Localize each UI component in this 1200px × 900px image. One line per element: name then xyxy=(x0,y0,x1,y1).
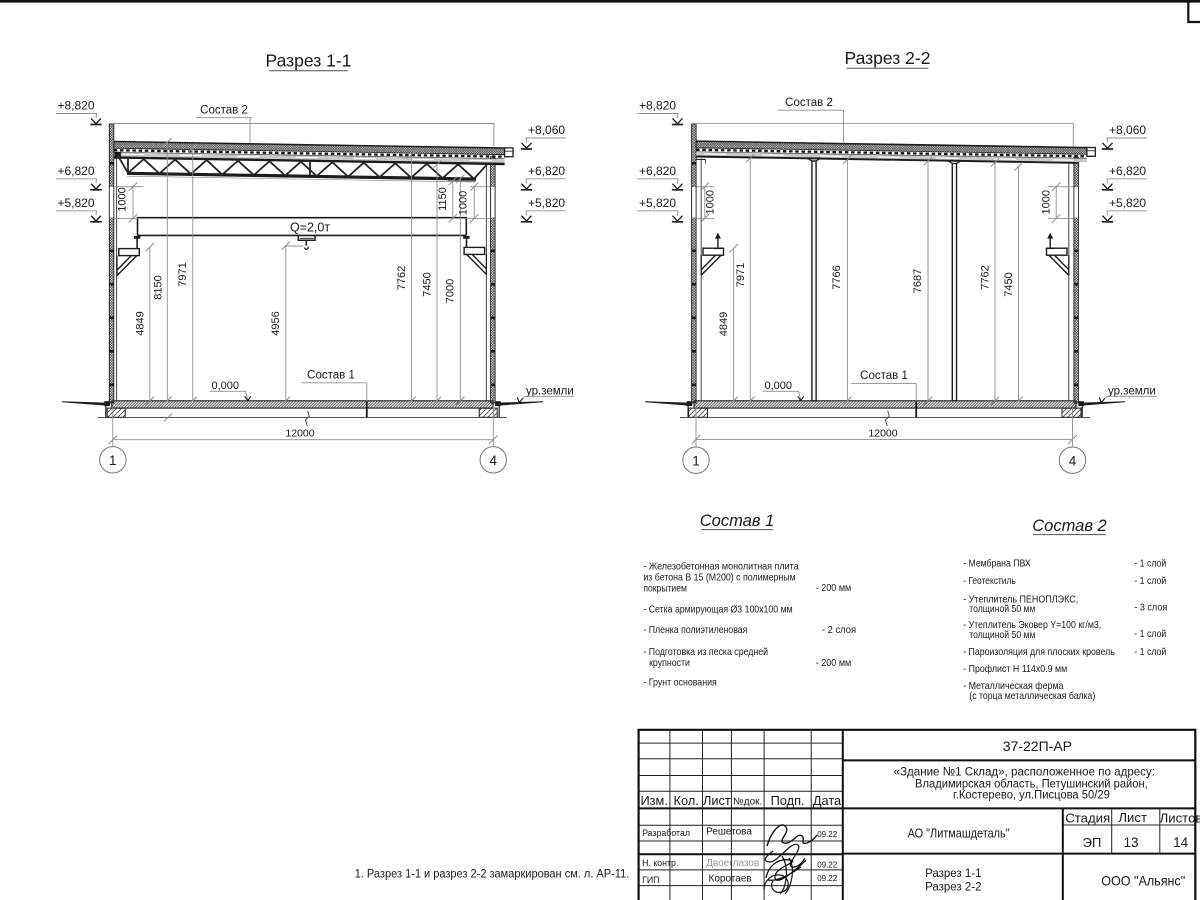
svg-text:7762: 7762 xyxy=(980,265,992,289)
svg-text:- 3 слоя: - 3 слоя xyxy=(1134,602,1167,614)
svg-text:1: 1 xyxy=(109,453,117,468)
svg-text:+8,820: +8,820 xyxy=(639,99,676,113)
svg-text:1000: 1000 xyxy=(458,191,470,215)
svg-text:4849: 4849 xyxy=(718,312,730,336)
svg-text:09.22: 09.22 xyxy=(817,874,838,883)
svg-text:4849: 4849 xyxy=(135,311,147,335)
svg-text:8150: 8150 xyxy=(152,275,164,299)
svg-text:ур.земли: ур.земли xyxy=(1108,385,1156,397)
svg-text:7971: 7971 xyxy=(177,262,189,286)
svg-text:(с торца металлическая балка): (с торца металлическая балка) xyxy=(969,690,1095,702)
svg-text:- 1 слой: - 1 слой xyxy=(1134,646,1166,658)
svg-text:Изм.: Изм. xyxy=(640,793,667,808)
svg-text:- Пленка полиэтиленовая: - Пленка полиэтиленовая xyxy=(643,624,747,636)
svg-text:+6,820: +6,820 xyxy=(528,164,565,178)
svg-text:ур.земли: ур.земли xyxy=(526,385,574,397)
svg-text:№док.: №док. xyxy=(733,797,762,808)
svg-text:13: 13 xyxy=(1123,835,1138,850)
svg-text:ГИП: ГИП xyxy=(642,875,659,885)
svg-text:+8,060: +8,060 xyxy=(1109,123,1146,137)
svg-text:- 1 слой: - 1 слой xyxy=(1134,575,1166,587)
svg-text:- 1 слой: - 1 слой xyxy=(1134,558,1166,570)
svg-text:+5,820: +5,820 xyxy=(528,196,565,210)
svg-text:толщиной 50 мм: толщиной 50 мм xyxy=(969,629,1035,641)
svg-text:Листов: Листов xyxy=(1160,811,1200,826)
svg-text:1: 1 xyxy=(692,454,700,469)
svg-text:1150: 1150 xyxy=(437,187,449,211)
svg-text:ЭП: ЭП xyxy=(1083,835,1102,850)
svg-text:Состав 2: Состав 2 xyxy=(200,104,248,116)
svg-text:Разрез 1-1: Разрез 1-1 xyxy=(266,51,352,71)
svg-text:1000: 1000 xyxy=(1040,190,1052,214)
svg-text:+8,820: +8,820 xyxy=(57,99,94,113)
svg-text:Разрез 2-2: Разрез 2-2 xyxy=(925,881,981,893)
svg-text:г.Костерево, ул.Писцова 50/29: г.Костерево, ул.Писцова 50/29 xyxy=(953,788,1110,802)
svg-text:Q=2,0т: Q=2,0т xyxy=(290,221,330,235)
svg-text:Разработал: Разработал xyxy=(642,828,690,838)
svg-text:+6,820: +6,820 xyxy=(57,164,94,178)
svg-text:толщиной 50 мм: толщиной 50 мм xyxy=(969,603,1035,615)
svg-text:ООО "Альянс": ООО "Альянс" xyxy=(1101,873,1185,889)
svg-text:- 200 мм: - 200 мм xyxy=(816,657,851,669)
svg-text:7000: 7000 xyxy=(445,279,457,303)
svg-text:7762: 7762 xyxy=(396,266,408,290)
svg-text:1000: 1000 xyxy=(117,187,129,211)
svg-text:+5,820: +5,820 xyxy=(639,196,676,210)
svg-text:1. Разрез 1-1 и разрез 2-2 зам: 1. Разрез 1-1 и разрез 2-2 замаркирован … xyxy=(355,867,630,881)
svg-text:7687: 7687 xyxy=(912,269,924,293)
svg-text:- Мембрана ПВХ: - Мембрана ПВХ xyxy=(963,558,1030,570)
svg-text:крупности: крупности xyxy=(649,657,690,669)
svg-text:Кол.: Кол. xyxy=(674,793,699,808)
svg-text:- Геотекстиль: - Геотекстиль xyxy=(963,575,1016,587)
svg-text:Разрез 1-1: Разрез 1-1 xyxy=(925,868,981,880)
svg-text:+5,820: +5,820 xyxy=(57,196,94,210)
svg-text:Дата: Дата xyxy=(813,793,842,808)
svg-text:12000: 12000 xyxy=(868,427,897,439)
svg-text:- Грунт основания: - Грунт основания xyxy=(643,677,716,689)
svg-text:4956: 4956 xyxy=(270,311,282,335)
svg-text:Н. контр.: Н. контр. xyxy=(642,858,678,868)
svg-text:Состав 2: Состав 2 xyxy=(1032,517,1106,535)
svg-text:+5,820: +5,820 xyxy=(1109,196,1146,210)
svg-text:- 2 слоя: - 2 слоя xyxy=(822,624,856,636)
svg-text:Коротаев: Коротаев xyxy=(709,874,752,885)
svg-text:4: 4 xyxy=(1069,454,1077,469)
svg-text:покрытием: покрытием xyxy=(643,582,687,594)
svg-text:+6,820: +6,820 xyxy=(1109,164,1146,178)
svg-text:Разрез 2-2: Разрез 2-2 xyxy=(845,48,931,68)
svg-text:Состав 1: Состав 1 xyxy=(860,370,908,382)
svg-text:14: 14 xyxy=(1173,835,1189,850)
svg-text:Стадия: Стадия xyxy=(1065,811,1110,826)
svg-text:Подп.: Подп. xyxy=(771,793,805,808)
svg-text:Состав 2: Состав 2 xyxy=(785,97,833,109)
svg-text:4: 4 xyxy=(490,453,498,468)
svg-text:Двоеглазов: Двоеглазов xyxy=(706,858,759,869)
svg-text:Состав 1: Состав 1 xyxy=(700,512,774,530)
svg-text:- Сетка армирующая Ø3 100х100: - Сетка армирующая Ø3 100х100 мм xyxy=(643,603,792,615)
svg-text:Состав 1: Состав 1 xyxy=(307,370,355,382)
svg-text:09.22: 09.22 xyxy=(817,860,838,869)
svg-text:1000: 1000 xyxy=(704,190,716,214)
svg-text:Решетова: Решетова xyxy=(706,827,752,838)
svg-text:0,000: 0,000 xyxy=(212,380,240,392)
svg-text:7971: 7971 xyxy=(735,263,747,287)
svg-text:- Профлист Н 114х0.9 мм: - Профлист Н 114х0.9 мм xyxy=(963,663,1067,675)
svg-text:7450: 7450 xyxy=(1003,272,1015,296)
svg-text:АО "Литмашдеталь": АО "Литмашдеталь" xyxy=(908,826,1010,841)
svg-text:- Пароизоляция для плоских кро: - Пароизоляция для плоских кровель xyxy=(963,646,1115,658)
svg-text:+8,060: +8,060 xyxy=(528,123,565,137)
svg-text:7450: 7450 xyxy=(421,272,433,296)
svg-text:09.22: 09.22 xyxy=(817,830,838,839)
svg-text:- 1 слой: - 1 слой xyxy=(1134,628,1166,640)
svg-text:Лист: Лист xyxy=(703,793,731,808)
svg-text:- 200 мм: - 200 мм xyxy=(816,582,851,594)
svg-text:12000: 12000 xyxy=(285,427,314,439)
svg-text:37-22П-АР: 37-22П-АР xyxy=(1003,738,1072,754)
svg-text:+6,820: +6,820 xyxy=(639,164,676,178)
svg-text:7766: 7766 xyxy=(831,265,843,289)
svg-text:0,000: 0,000 xyxy=(765,380,793,392)
svg-text:Лист: Лист xyxy=(1118,810,1147,825)
